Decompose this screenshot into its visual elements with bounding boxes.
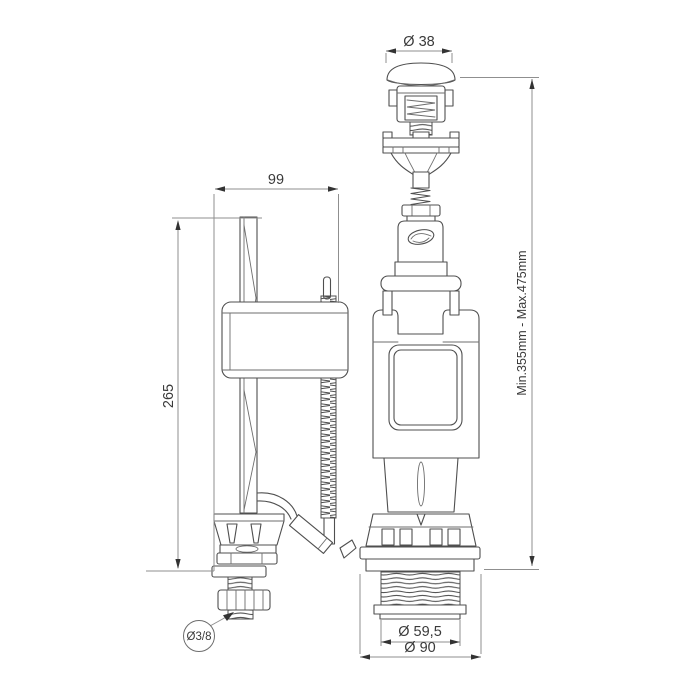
spider-flange-bar (383, 138, 459, 147)
outlet-thread (381, 572, 460, 605)
spider-flange-rim (383, 147, 459, 153)
button-clip-right (445, 90, 453, 106)
tank-flange-rim (366, 559, 474, 571)
ratchet-prong-right (450, 291, 459, 315)
fill-valve-base (212, 514, 284, 619)
dim-label-flange: Ø 90 (404, 640, 435, 656)
spring-rod (402, 172, 440, 222)
inlet-thread-upper (228, 577, 252, 590)
base-crown (214, 514, 284, 545)
lower-taper (384, 458, 458, 512)
technical-drawing-canvas: 99 265 Ø 38 Min.355mm - Max.475mm (0, 0, 700, 700)
side-hook (340, 540, 356, 558)
float-cup (222, 302, 348, 378)
spider-tab-left (383, 132, 392, 138)
dim-label-button: Ø 38 (403, 34, 434, 50)
flush-valve-drawing (340, 63, 480, 619)
dim-button-diameter: Ø 38 (386, 34, 452, 63)
valve-lower-body (340, 458, 480, 619)
telescopic-shell (373, 291, 479, 458)
dim-inlet-callout: Ø3/8 (184, 612, 235, 652)
adjust-nut (402, 205, 440, 216)
base-plate-lower (212, 566, 266, 577)
outlet-collar (374, 605, 466, 614)
button-housing (397, 86, 445, 122)
button-clip-left (389, 90, 397, 106)
outlet-lip (380, 614, 460, 619)
shell-window-outer (389, 345, 462, 430)
button-flange-spider (383, 132, 459, 175)
dim-label-height-range: Min.355mm - Max.475mm (515, 250, 529, 395)
dim-label-height: 265 (161, 384, 177, 408)
push-button (387, 63, 455, 135)
rod-tube (413, 172, 429, 188)
valve-upper-body (381, 221, 461, 291)
inlet-locknut (218, 590, 270, 610)
dim-label-width: 99 (268, 172, 284, 188)
base-plate-upper (217, 553, 277, 564)
tank-flange (360, 547, 480, 559)
spider-hub (413, 132, 429, 138)
upper-body (398, 221, 443, 262)
dim-label-inlet: Ø3/8 (187, 631, 212, 643)
dim-label-thread: Ø 59,5 (398, 624, 442, 640)
fill-valve-drawing (212, 217, 348, 619)
spider-tab-right (450, 132, 459, 138)
ratchet-prong-left (383, 291, 392, 315)
button-cap (387, 63, 455, 85)
ratchet-clip-bar (381, 276, 461, 291)
